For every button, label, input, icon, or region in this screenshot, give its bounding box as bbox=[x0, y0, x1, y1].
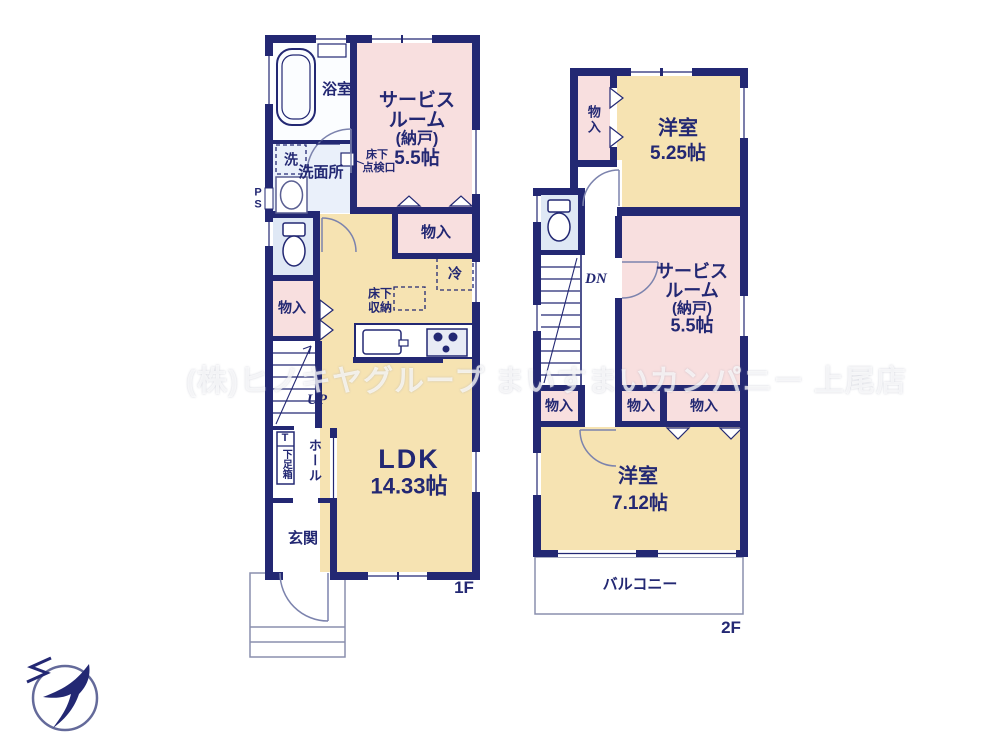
bathtub-icon bbox=[277, 49, 315, 125]
room-label-storage-c: 物入 bbox=[690, 399, 718, 414]
room-label-service1-1: サービス bbox=[379, 91, 455, 111]
room-label-bedroom1: 洋室 bbox=[658, 119, 698, 140]
toilet-1f-icon bbox=[283, 223, 305, 266]
room-label-service2-4: 5.5帖 bbox=[670, 317, 713, 336]
room-label-balcony: バルコニー bbox=[603, 577, 678, 593]
room-label-storage-b: 物入 bbox=[627, 399, 655, 414]
room-label-bedroom1-size: 5.25帖 bbox=[650, 144, 706, 164]
room-label-storage-top: 物入 bbox=[421, 225, 451, 241]
label-underfloor-1: 床下 bbox=[368, 288, 392, 301]
room-label-bath: 浴室 bbox=[322, 82, 352, 98]
label-fridge: 冷 bbox=[448, 267, 462, 282]
watermark-text: (株)ヒノキヤグループ まいすまいカンパニー 上尾店 bbox=[186, 356, 907, 400]
floor1-label: 1F bbox=[454, 579, 474, 597]
label-underfloor-2: 収納 bbox=[368, 302, 392, 315]
label-inspection-2: 点検口 bbox=[363, 163, 396, 175]
label-shoe-box-t: T bbox=[282, 433, 289, 445]
room-label-washer: 洗 bbox=[284, 153, 298, 168]
room-label-service1-4: 5.5帖 bbox=[394, 149, 439, 169]
kitchen-counter-icon bbox=[355, 324, 473, 358]
north-compass-icon bbox=[15, 650, 110, 745]
room-label-service1-2: ルーム bbox=[389, 111, 445, 131]
room-label-service2-3: (納戸) bbox=[672, 301, 712, 317]
label-inspection-1: 床下 bbox=[366, 150, 388, 162]
room-label-hall: ホール bbox=[307, 439, 321, 484]
toilet-2f-icon bbox=[548, 200, 570, 241]
pipe-space-box bbox=[265, 188, 273, 209]
room-label-service1-3: (納戸) bbox=[396, 132, 439, 149]
floorplan-page: 浴室 洗 洗面所 サービス ルーム (納戸) 5.5帖 床下 点検口 P S 物… bbox=[0, 0, 1000, 750]
vanity-sink-icon bbox=[276, 177, 307, 213]
room-label-bedroom2-size: 7.12帖 bbox=[612, 494, 668, 514]
room-label-bedroom2: 洋室 bbox=[618, 467, 658, 488]
floor1-porch bbox=[250, 573, 345, 657]
label-shoe-box: 下足箱 bbox=[280, 449, 291, 479]
bath-counter-icon bbox=[318, 44, 346, 57]
floor2-label: 2F bbox=[721, 619, 741, 637]
room-label-entrance: 玄関 bbox=[288, 531, 318, 547]
room-label-ldk: LDK bbox=[378, 445, 440, 473]
label-pipe-space: P S bbox=[254, 187, 261, 210]
label-stairs-down: DN bbox=[585, 272, 607, 288]
room-label-washroom: 洗面所 bbox=[298, 165, 343, 181]
room-label-service2-1: サービス bbox=[656, 263, 728, 282]
room-label-storage-upper: 物入 bbox=[586, 105, 600, 135]
room-label-ldk-size: 14.33帖 bbox=[370, 474, 447, 497]
room-label-service2-2: ルーム bbox=[665, 282, 718, 301]
room-label-storage-left: 物入 bbox=[278, 301, 306, 316]
room-label-storage-a: 物入 bbox=[545, 399, 573, 414]
